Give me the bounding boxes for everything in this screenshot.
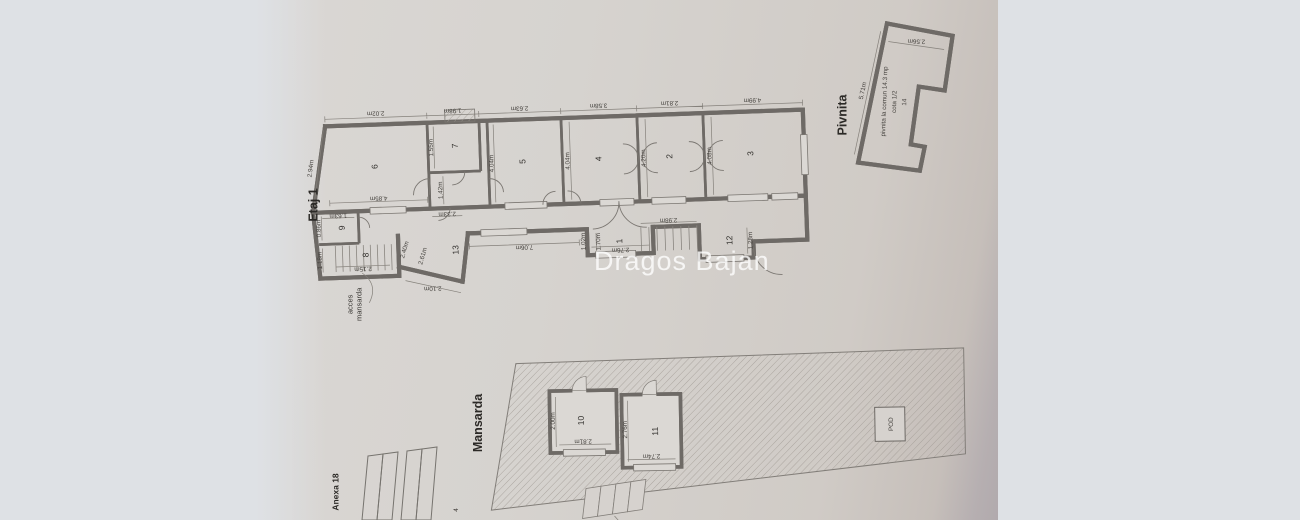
room6-number: 6 xyxy=(369,164,379,169)
dim-room9-top: 1.63m xyxy=(329,212,347,220)
room10-height-dim: 2.00m xyxy=(550,412,557,430)
dim-corridor-len: 7.06m xyxy=(516,243,534,251)
mansarda-section-label: Mansarda xyxy=(471,394,485,452)
dim-room8-stair: 2.15m xyxy=(354,265,372,273)
room2-number: 2 xyxy=(664,154,674,159)
dim-vestibule: 1.42m xyxy=(437,181,445,199)
dim-corridor-seg: 2.33m xyxy=(438,210,456,218)
dim-top-3: 2.63m xyxy=(511,104,529,112)
dim-outer-slant: 2.10m xyxy=(424,284,442,292)
acces-line1: acces xyxy=(345,288,354,321)
room11-width-dim: 2.74m xyxy=(643,452,661,459)
room5-number: 5 xyxy=(517,159,527,164)
room3-number: 3 xyxy=(745,151,755,156)
room7-number: 7 xyxy=(450,143,460,148)
dim-room7-side: 1.55m xyxy=(428,139,436,157)
room11-height-dim: 2.76m xyxy=(622,421,629,439)
watermark-text: Dragos Bajan xyxy=(594,246,770,277)
dim-room8-side: 1.18m xyxy=(316,252,324,270)
pod-box: POD xyxy=(875,407,906,442)
svg-text:14: 14 xyxy=(901,98,908,106)
dim-top-6: 4.99m xyxy=(744,96,762,104)
dim-room8-wall-a: 2.40m xyxy=(399,240,411,259)
mansarda-room11: 2.76m 2.74m 11 xyxy=(619,380,684,471)
dim-room12-top: 2.98m xyxy=(660,216,678,224)
room10-width-dim: 2.81m xyxy=(574,437,592,444)
anexa-section-label: Anexa 18 xyxy=(331,473,341,510)
etaj1-partition-walls xyxy=(315,113,707,244)
dim-room8-wall-b: 2.61m xyxy=(417,247,429,266)
room11-number: 11 xyxy=(650,426,660,435)
dim-room2-side: 4.20m xyxy=(640,149,648,167)
pivnita-dim-lines xyxy=(854,30,944,157)
dim-corridor-end: 1.02m xyxy=(580,232,588,250)
etaj1-floorplan: 2.02m 1.98m 2.63m 3.58m 2.81m 4.99m 2.94… xyxy=(296,89,833,322)
room13-number: 13 xyxy=(450,245,460,255)
dim-top-4: 3.58m xyxy=(590,101,608,109)
scanned-floorplan-page: 2.02m 1.98m 2.63m 3.58m 2.81m 4.99m 2.94… xyxy=(0,0,1300,520)
room9-number: 9 xyxy=(337,225,347,230)
dim-room9-side: 0.86m xyxy=(315,220,323,238)
room12-number: 12 xyxy=(724,235,734,245)
room1-number: 1 xyxy=(614,238,624,243)
anexa-partial-dim: 4 xyxy=(453,508,460,512)
dim-room6-bottom: 4.85m xyxy=(370,194,388,202)
dim-top-1: 2.02m xyxy=(367,109,385,117)
svg-text:cota 1/2: cota 1/2 xyxy=(891,90,899,113)
pivnita-top-dim: 2.56m xyxy=(908,37,926,45)
dim-top-5: 2.81m xyxy=(661,99,679,107)
dim-left-slant: 2.94m xyxy=(307,159,316,177)
dim-room5-side: 4.04m xyxy=(488,155,496,173)
svg-text:pivnita la comun 14.3 mp: pivnita la comun 14.3 mp xyxy=(880,66,889,137)
dim-top-2: 1.98m xyxy=(444,107,462,115)
pivnita-note: pivnita la comun 14.3 mp cota 1/2 14 xyxy=(880,66,909,137)
room4-number: 4 xyxy=(593,156,603,161)
etaj1-section-label: Etaj 1 xyxy=(307,188,321,221)
room10-number: 10 xyxy=(576,415,586,425)
room8-number: 8 xyxy=(361,252,371,257)
anexa-structure: 4 xyxy=(352,440,467,520)
anexa-bar-4 xyxy=(416,447,437,520)
mansarda-plan: 2.00m 2.81m 10 2.76m 2.74m 11 POD xyxy=(453,333,1001,520)
anexa-bar-2 xyxy=(377,452,398,520)
dim-room4-side: 4.04m xyxy=(564,152,572,170)
pod-label: POD xyxy=(888,417,895,431)
acces-line2: mansarda xyxy=(355,288,364,321)
dim-room3-side: 4.08m xyxy=(706,147,714,165)
acces-mansarda-label: acces mansarda xyxy=(345,288,364,321)
pivnita-section-label: Pivnita xyxy=(836,95,850,136)
